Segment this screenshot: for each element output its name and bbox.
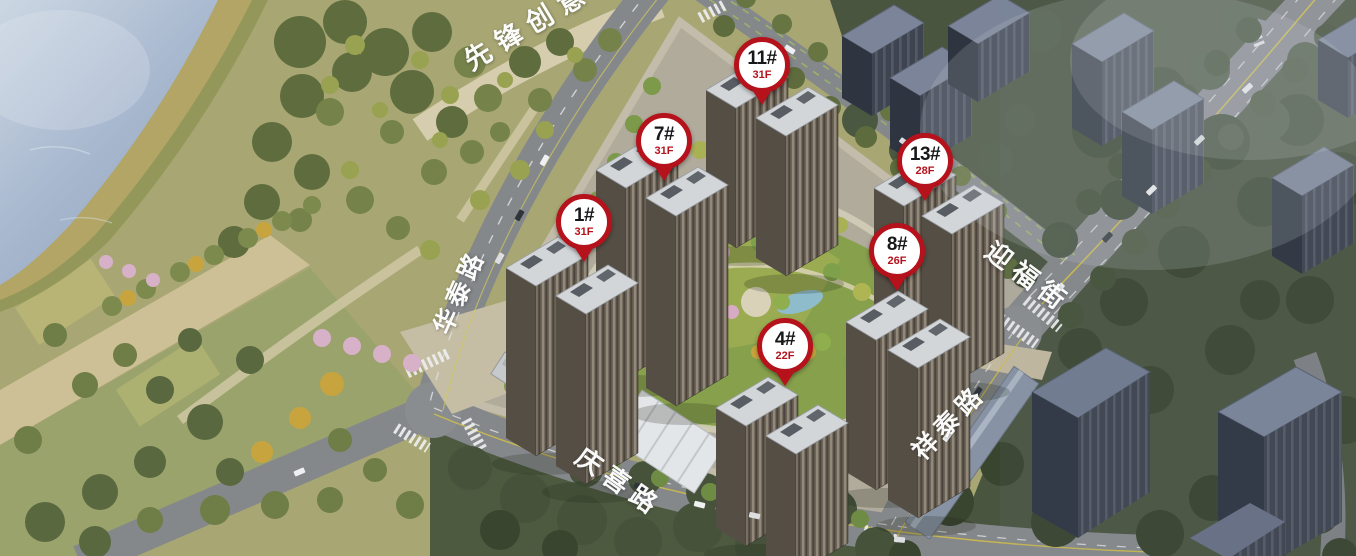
marker-circle: 7# 31F — [636, 113, 692, 169]
marker-pointer — [886, 274, 908, 291]
marker-building-number: 1# — [574, 206, 594, 225]
marker-circle: 13# 28F — [897, 133, 953, 189]
building-marker-8[interactable]: 8# 26F — [868, 223, 926, 291]
marker-floor-count: 22F — [776, 350, 795, 362]
building-marker-7[interactable]: 7# 31F — [635, 113, 693, 181]
building-marker-1[interactable]: 1# 31F — [555, 194, 613, 262]
marker-pointer — [774, 369, 796, 386]
marker-floor-count: 26F — [888, 255, 907, 267]
marker-pointer — [573, 245, 595, 262]
marker-pointer — [751, 88, 773, 105]
marker-floor-count: 31F — [655, 145, 674, 157]
marker-pointer — [653, 164, 675, 181]
marker-building-number: 13# — [910, 145, 940, 164]
marker-building-number: 7# — [654, 125, 674, 144]
marker-floor-count: 31F — [575, 226, 594, 238]
marker-building-number: 11# — [747, 49, 776, 68]
building-marker-4[interactable]: 4# 22F — [756, 318, 814, 386]
aerial-site-map: 11# 31F 7# 31F 13# 28F 1# 31F 8# 26F 4# … — [0, 0, 1356, 556]
marker-circle: 8# 26F — [869, 223, 925, 279]
marker-circle: 11# 31F — [734, 37, 790, 93]
marker-circle: 1# 31F — [556, 194, 612, 250]
building-marker-13[interactable]: 13# 28F — [896, 133, 954, 201]
marker-pointer — [914, 184, 936, 201]
marker-floor-count: 28F — [916, 165, 935, 177]
marker-circle: 4# 22F — [757, 318, 813, 374]
marker-building-number: 4# — [775, 330, 795, 349]
site-render-art — [0, 0, 1356, 556]
marker-building-number: 8# — [887, 235, 907, 254]
building-marker-11[interactable]: 11# 31F — [733, 37, 791, 105]
marker-floor-count: 31F — [753, 69, 772, 81]
